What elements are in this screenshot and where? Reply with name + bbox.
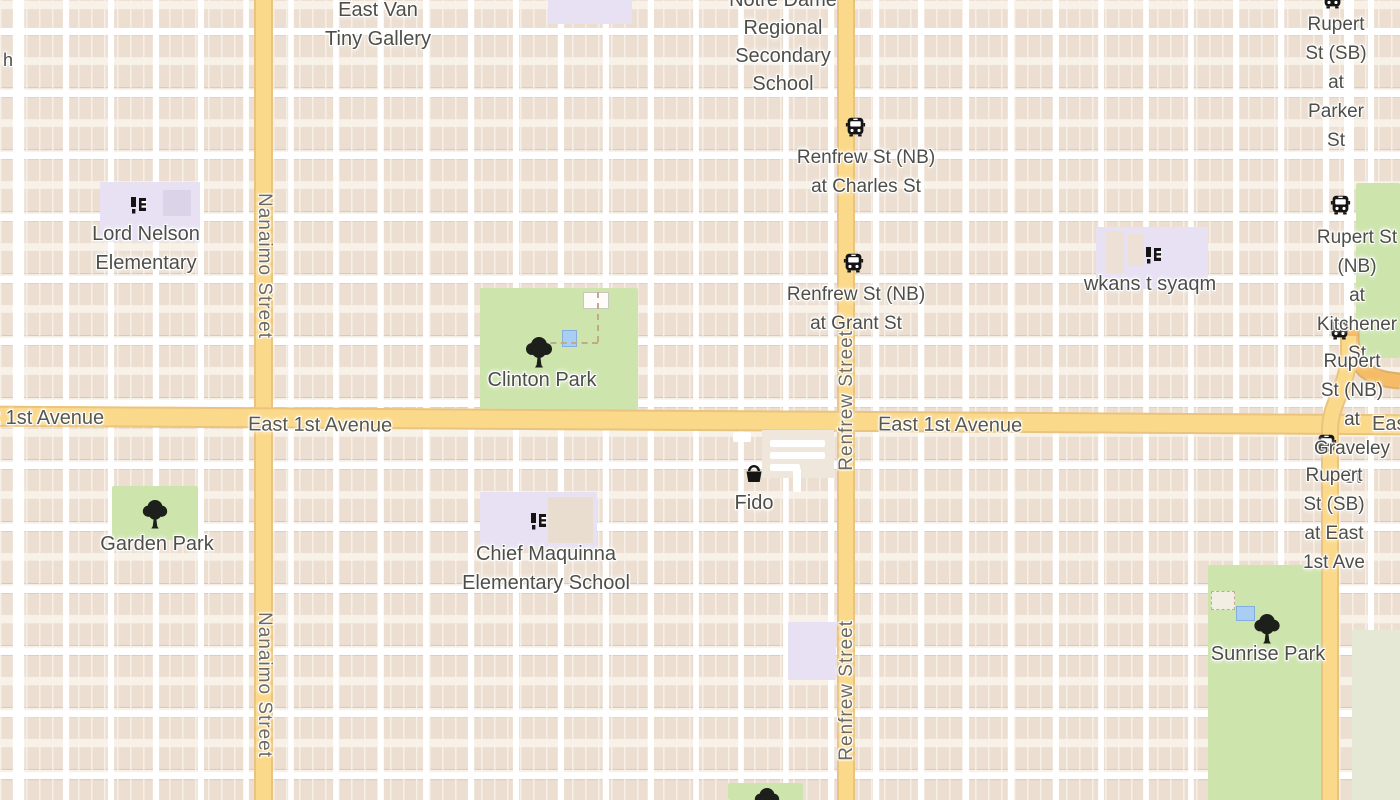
bus-icon (843, 252, 864, 273)
poi-label-fido: Fido (735, 489, 774, 518)
water-feature-clinton (562, 330, 577, 347)
poi-label-chief-maquinna: Chief Maquinna Elementary School (462, 540, 630, 598)
poi-label-notre-dame: Notre Dame Regional Secondary School (729, 0, 837, 98)
school-icon (526, 511, 552, 533)
road-label-nanaimo-street-1: Nanaimo Street (253, 193, 275, 339)
parking-stub (733, 432, 751, 442)
poi-label-east-van-tiny-gallery: East Van Tiny Gallery (325, 0, 431, 54)
bus-icon (845, 116, 866, 137)
road-rupert-curves (0, 0, 1400, 800)
poi-label-garden-park: Garden Park (100, 530, 213, 559)
road-label-nanaimo-street-2: Nanaimo Street (253, 612, 275, 758)
tree-icon (140, 498, 170, 530)
bus-stop-label-rupert-parker: Rupert St (SB) at Parker St (1304, 10, 1368, 155)
parking-aisle-2 (770, 452, 825, 459)
road-label-renfrew-street-1: Renfrew Street (836, 330, 858, 471)
school-icon (1141, 245, 1167, 267)
school-icon (126, 195, 152, 217)
poi-label-wkans: wkans t syaqm (1084, 270, 1216, 299)
road-label-east-1st-avenue-1: East 1st Avenue (0, 407, 104, 430)
road-label-renfrew-street-2: Renfrew Street (836, 620, 858, 761)
parking-aisle-1 (770, 440, 825, 447)
tree-icon (752, 786, 782, 800)
poi-label-lord-nelson: Lord Nelson Elementary (92, 220, 200, 278)
tree-icon (521, 335, 557, 369)
road-label-east-1st-avenue-3: East 1st Avenue (878, 413, 1022, 437)
bus-icon (1322, 0, 1343, 9)
road-label-east-1st-avenue-2: East 1st Avenue (248, 413, 392, 437)
poi-label-clinton-park: Clinton Park (488, 366, 597, 395)
bus-stop-label-renfrew-charles: Renfrew St (NB) at Charles St (797, 143, 935, 201)
path-clinton-vertical (597, 292, 599, 342)
road-label-east-1st-avenue-4: East 1st Avenue (1372, 413, 1400, 436)
basket-icon (742, 461, 766, 485)
poi-label-sunrise-park: Sunrise Park (1211, 640, 1326, 669)
bus-icon (1330, 194, 1351, 215)
bus-stop-label-rupert-east1st: Rupert St (SB) at East 1st Ave (1301, 461, 1367, 577)
parking-access (793, 468, 801, 492)
map-canvas[interactable]: East Van Tiny Gallery Notre Dame Regiona… (0, 0, 1400, 800)
poi-label-partial-left-edge: h (3, 46, 13, 75)
